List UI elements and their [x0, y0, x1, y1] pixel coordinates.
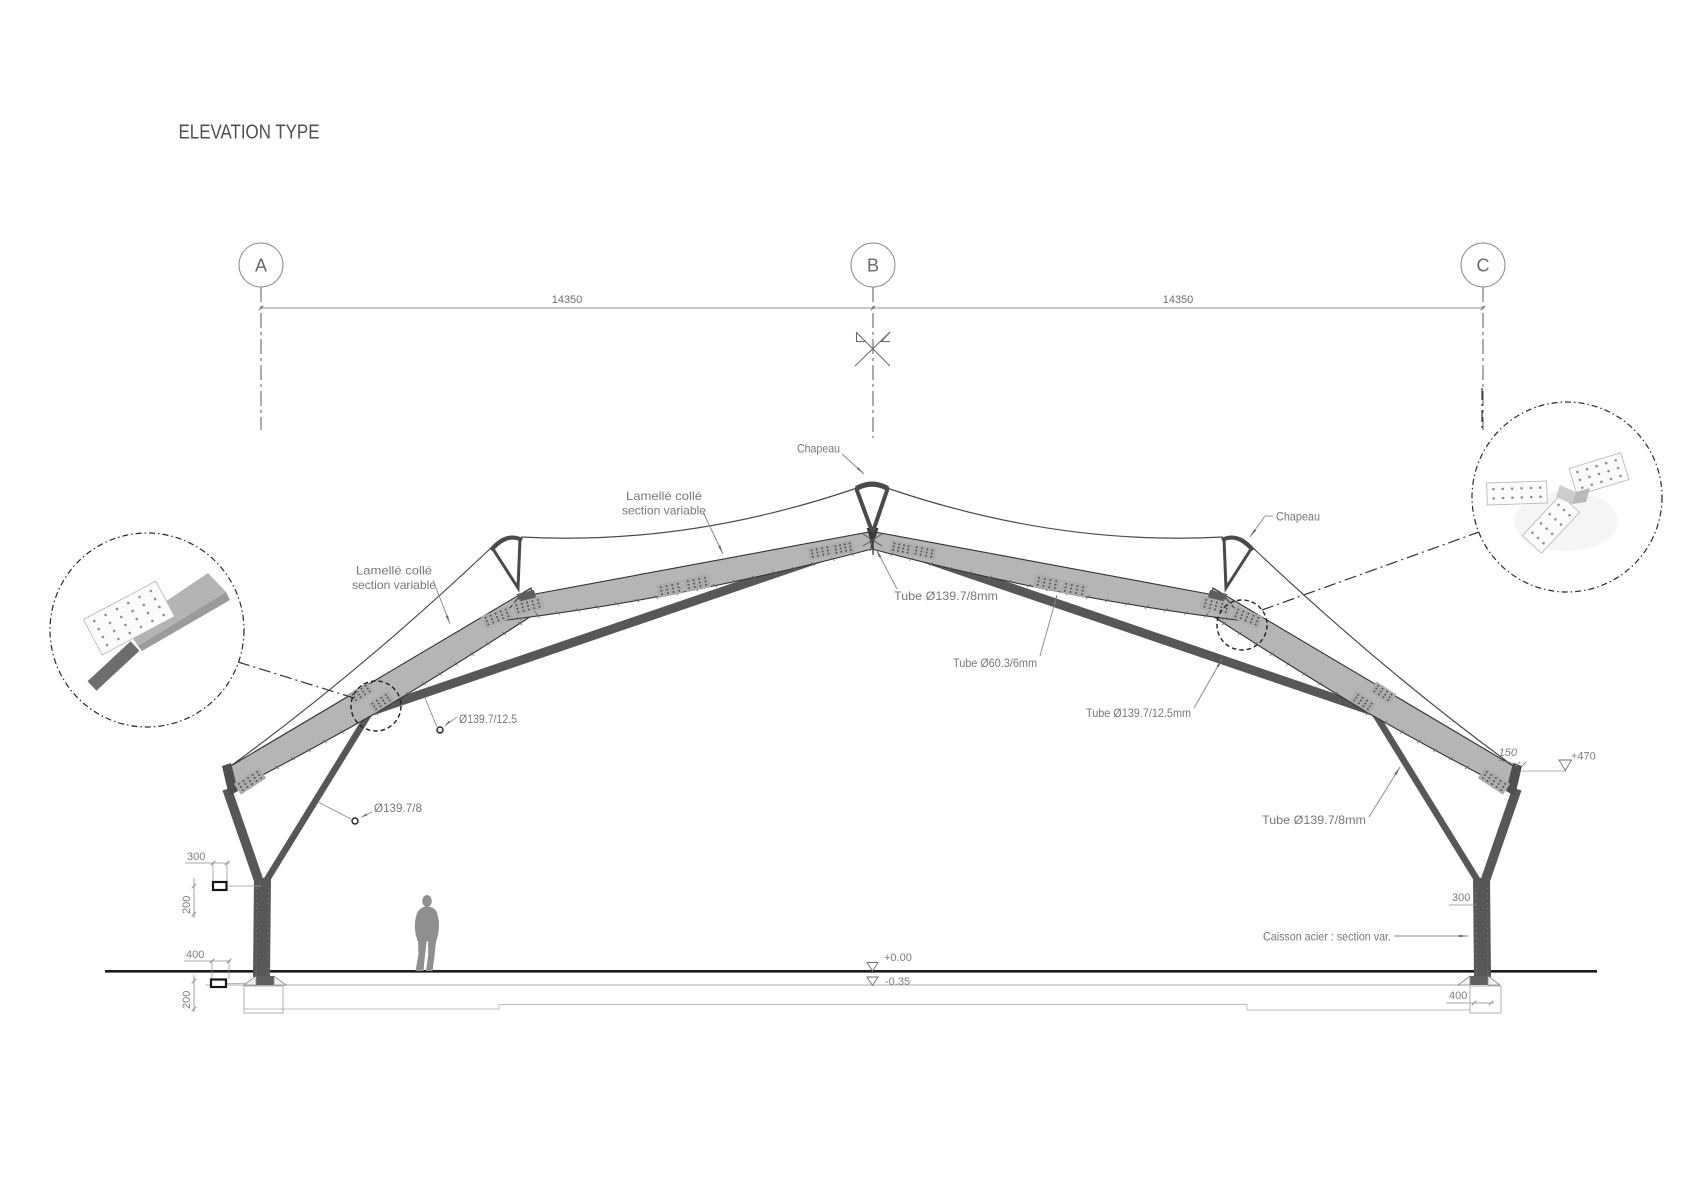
svg-text:200: 200	[181, 896, 193, 914]
svg-text:Chapeau: Chapeau	[797, 442, 840, 456]
svg-text:Ø139.7/12.5: Ø139.7/12.5	[459, 712, 517, 726]
svg-text:B: B	[867, 256, 879, 276]
svg-text:14350: 14350	[552, 294, 583, 306]
svg-text:Lamellé collé: Lamellé collé	[626, 489, 702, 503]
svg-text:300: 300	[187, 851, 205, 863]
svg-text:Chapeau: Chapeau	[1276, 510, 1320, 524]
svg-text:section variable: section variable	[352, 578, 436, 592]
svg-text:400: 400	[186, 949, 204, 961]
svg-text:300: 300	[1452, 892, 1470, 904]
svg-text:+0.00: +0.00	[884, 952, 912, 964]
svg-text:400: 400	[1449, 990, 1467, 1002]
svg-text:Ø139.7/8: Ø139.7/8	[374, 801, 422, 815]
svg-text:+470: +470	[1571, 751, 1596, 763]
svg-text:150: 150	[1499, 747, 1518, 759]
svg-text:Tube Ø139.7/8mm: Tube Ø139.7/8mm	[1262, 813, 1366, 827]
svg-text:Tube Ø139.7/8mm: Tube Ø139.7/8mm	[894, 589, 998, 603]
svg-text:section variable: section variable	[622, 504, 706, 518]
svg-text:200: 200	[181, 991, 193, 1009]
svg-text:Tube Ø139.7/12.5mm: Tube Ø139.7/12.5mm	[1086, 706, 1191, 720]
svg-text:Caisson acier : section var.: Caisson acier : section var.	[1263, 930, 1391, 944]
svg-text:Tube Ø60.3/6mm: Tube Ø60.3/6mm	[953, 656, 1037, 670]
svg-text:14350: 14350	[1163, 294, 1194, 306]
svg-text:-0.35: -0.35	[885, 976, 910, 988]
svg-text:C: C	[1477, 256, 1490, 276]
svg-text:ELEVATION TYPE: ELEVATION TYPE	[179, 122, 320, 144]
svg-text:A: A	[255, 256, 267, 276]
svg-text:Lamellé collé: Lamellé collé	[356, 564, 432, 578]
